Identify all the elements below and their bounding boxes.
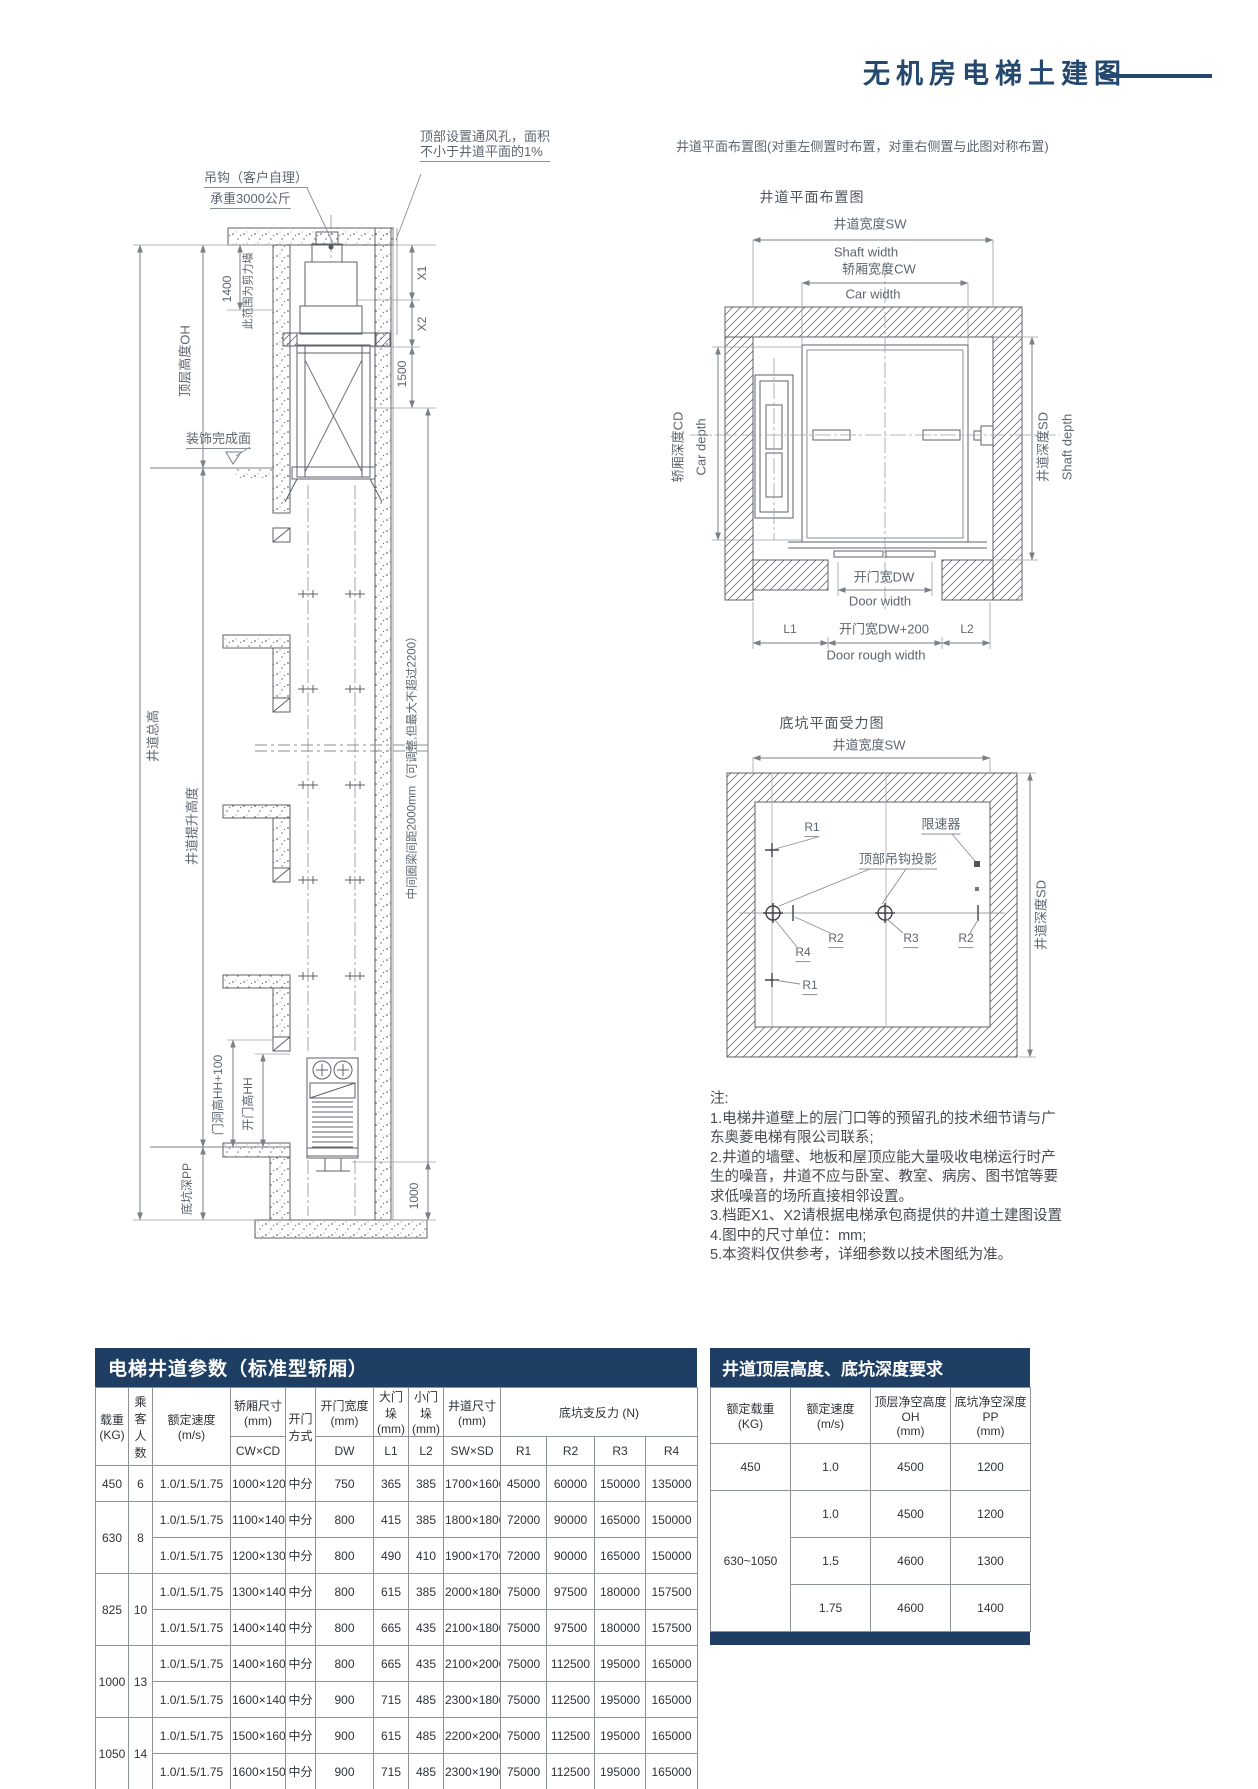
- dim-1400: 1400: [221, 276, 235, 303]
- table-row: 45061.0/1.5/1.751000×1200中分7503653851700…: [96, 1466, 698, 1502]
- table-cell: 75000: [501, 1682, 547, 1718]
- col-subheader-swsd: SW×SD: [444, 1437, 501, 1466]
- col-header-car-size: 轿厢尺寸(mm): [231, 1388, 286, 1437]
- pit-r2-right: R2: [958, 932, 973, 948]
- col-subheader-r3: R3: [595, 1437, 646, 1466]
- table-cell: 97500: [547, 1610, 595, 1646]
- table-cell: 75000: [501, 1574, 547, 1610]
- table-cell: 630: [96, 1502, 129, 1574]
- col-subheader-r1: R1: [501, 1437, 547, 1466]
- table-cell: 90000: [547, 1538, 595, 1574]
- table-cell: 1.0/1.5/1.75: [153, 1610, 231, 1646]
- table-cell: 1500×1600: [231, 1718, 286, 1754]
- shear-wall-label: 此范围为剪力墙: [243, 253, 256, 330]
- table-cell: 150000: [646, 1538, 698, 1574]
- table-cell: 112500: [547, 1754, 595, 1789]
- vent-note-line1: 顶部设置通风孔，面积: [420, 130, 550, 145]
- table-cell: 75000: [501, 1754, 547, 1789]
- table-cell: 415: [374, 1502, 409, 1538]
- table-row: 1050141.0/1.5/1.751500×1600中分90061548522…: [96, 1718, 698, 1754]
- table-cell: 1050: [96, 1718, 129, 1789]
- shaft-depth-en: Shaft depth: [1061, 414, 1076, 481]
- table-cell: 中分: [286, 1754, 316, 1789]
- table-cell: 1.0/1.5/1.75: [153, 1502, 231, 1538]
- car-width-cn: 轿厢宽度CW: [842, 263, 916, 278]
- table-cell: 13: [129, 1646, 153, 1718]
- table-cell: 800: [316, 1502, 374, 1538]
- car-depth-cn: 轿厢深度CD: [672, 412, 687, 483]
- col-header-oh: 顶层净空高度OH(mm): [871, 1388, 951, 1444]
- table-cell: 8: [129, 1502, 153, 1574]
- table-cell: 385: [409, 1574, 444, 1610]
- table-cell: 1400×1600: [231, 1646, 286, 1682]
- table-cell: 1600×1400: [231, 1682, 286, 1718]
- table-cell: 715: [374, 1682, 409, 1718]
- table-cell: 1400×1400: [231, 1610, 286, 1646]
- table-cell: 75000: [501, 1718, 547, 1754]
- table-cell: 150000: [595, 1466, 646, 1502]
- table-row: 63081.0/1.5/1.751100×1400中分8004153851800…: [96, 1502, 698, 1538]
- table-cell: 1200×1300: [231, 1538, 286, 1574]
- table-cell: 60000: [547, 1466, 595, 1502]
- door-width-cn: 开门宽DW: [854, 571, 915, 586]
- vent-note: 顶部设置通风孔，面积 不小于井道平面的1%: [420, 130, 550, 162]
- door-opening-height-label: 门洞高HH+100: [212, 1055, 226, 1135]
- table-cell: 485: [409, 1718, 444, 1754]
- table-cell: 1300: [951, 1538, 1031, 1585]
- dim-x2: X2: [416, 317, 430, 332]
- col-header-pp: 底坑净空深度PP(mm): [951, 1388, 1031, 1444]
- table-cell: 4600: [871, 1538, 951, 1585]
- table-cell: 800: [316, 1538, 374, 1574]
- col-header-pit-force: 底坑支反力 (N): [501, 1388, 698, 1437]
- col-subheader-r4: R4: [646, 1437, 698, 1466]
- dim-1000: 1000: [408, 1183, 422, 1210]
- table-cell: 665: [374, 1610, 409, 1646]
- notes-heading: 注:: [710, 1090, 1062, 1110]
- note-line: 3.档距X1、X2请根据电梯承包商提供的井道土建图设置: [710, 1207, 1062, 1227]
- table-cell: 195000: [595, 1754, 646, 1789]
- car-depth-en: Car depth: [695, 418, 710, 475]
- table-cell: 750: [316, 1466, 374, 1502]
- table-cell: 2200×2000: [444, 1718, 501, 1754]
- shaft-depth-cn: 井道深度SD: [1037, 412, 1052, 482]
- table-cell: 1400: [951, 1585, 1031, 1632]
- table-cell: 1800×1800: [444, 1502, 501, 1538]
- table-cell: 45000: [501, 1466, 547, 1502]
- table-cell: 385: [409, 1502, 444, 1538]
- car-width-en: Car width: [846, 288, 901, 303]
- table-row: 630~10501.045001200: [711, 1491, 1031, 1538]
- pit-shaft-depth: 井道深度SD: [1035, 880, 1050, 950]
- table-cell: 14: [129, 1718, 153, 1789]
- top-floor-height-label: 顶层高度OH: [179, 325, 194, 397]
- shaft-width-cn: 井道宽度SW: [834, 218, 907, 233]
- pit-title: 底坑平面受力图: [780, 715, 885, 731]
- table-cell: 195000: [595, 1646, 646, 1682]
- table-cell: 2300×1900: [444, 1754, 501, 1789]
- table-cell: 365: [374, 1466, 409, 1502]
- note-line: 4.图中的尺寸单位：mm;: [710, 1227, 1062, 1247]
- table-cell: 485: [409, 1754, 444, 1789]
- table-cell: 6: [129, 1466, 153, 1502]
- ring-beam-label: 中间圈梁间距2000mm（可调整,但最大不超过2200）: [406, 630, 419, 899]
- table-cell: 1.0: [791, 1444, 871, 1491]
- table-cell: 2000×1800: [444, 1574, 501, 1610]
- table-cell: 1200: [951, 1444, 1031, 1491]
- table-cell: 1600×1500: [231, 1754, 286, 1789]
- table-cell: 4600: [871, 1585, 951, 1632]
- col-header-shaft-size: 井道尺寸(mm): [444, 1388, 501, 1437]
- table-cell: 1.75: [791, 1585, 871, 1632]
- hook-note-line1: 吊钩（客户自理）: [204, 171, 308, 188]
- table-cell: 1700×1600: [444, 1466, 501, 1502]
- table-cell: 112500: [547, 1682, 595, 1718]
- table-cell: 72000: [501, 1538, 547, 1574]
- table-cell: 195000: [595, 1682, 646, 1718]
- table-row: 4501.045001200: [711, 1444, 1031, 1491]
- table-cell: 10: [129, 1574, 153, 1646]
- table-cell: 410: [409, 1538, 444, 1574]
- shaft-width-en: Shaft width: [834, 246, 898, 261]
- table-cell: 中分: [286, 1502, 316, 1538]
- table-row: 1000131.0/1.5/1.751400×1600中分80066543521…: [96, 1646, 698, 1682]
- table-cell: 385: [409, 1466, 444, 1502]
- pit-r4: R4: [795, 946, 810, 962]
- table-cell: 1.0/1.5/1.75: [153, 1538, 231, 1574]
- pit-plan-view: [727, 758, 1036, 1057]
- pit-r2-left: R2: [828, 932, 843, 948]
- table-cell: 715: [374, 1754, 409, 1789]
- table-row: 1.0/1.5/1.751200×1300中分8004904101900×170…: [96, 1538, 698, 1574]
- col-header-l2: 小门垛(mm): [409, 1388, 444, 1437]
- pit-depth-label: 底坑深PP: [181, 1163, 195, 1215]
- table-cell: 165000: [646, 1646, 698, 1682]
- col-subheader-dw: DW: [316, 1437, 374, 1466]
- note-line: 东奥菱电梯有限公司联系;: [710, 1129, 1062, 1149]
- table-cell: 180000: [595, 1574, 646, 1610]
- notes-block: 注: 1.电梯井道壁上的层门口等的预留孔的技术细节请与广 东奥菱电梯有限公司联系…: [710, 1090, 1062, 1266]
- table-cell: 450: [711, 1444, 791, 1491]
- table-cell: 1.0/1.5/1.75: [153, 1574, 231, 1610]
- dim-1500: 1500: [396, 361, 410, 388]
- table-cell: 中分: [286, 1574, 316, 1610]
- col-header-rated-speed: 额定速度(m/s): [791, 1388, 871, 1444]
- note-line: 求低噪音的场所直接相邻设置。: [710, 1188, 1062, 1208]
- table-cell: 1000×1200: [231, 1466, 286, 1502]
- table-cell: 165000: [595, 1538, 646, 1574]
- table-cell: 2100×1800: [444, 1610, 501, 1646]
- table-cell: 90000: [547, 1502, 595, 1538]
- col-header-rated-load: 额定载重(KG): [711, 1388, 791, 1444]
- table-cell: 中分: [286, 1718, 316, 1754]
- col-subheader-r2: R2: [547, 1437, 595, 1466]
- height-table-footer-bar: [710, 1632, 1030, 1645]
- table-cell: 中分: [286, 1682, 316, 1718]
- table-cell: 165000: [646, 1754, 698, 1789]
- table-cell: 490: [374, 1538, 409, 1574]
- note-line: 5.本资料仅供参考，详细参数以技术图纸为准。: [710, 1246, 1062, 1266]
- table-cell: 75000: [501, 1610, 547, 1646]
- dim-x1: X1: [416, 266, 430, 281]
- dim-l1: L1: [783, 623, 796, 637]
- note-line: 1.电梯井道壁上的层门口等的预留孔的技术细节请与广: [710, 1110, 1062, 1130]
- height-table-title: 井道顶层高度、底坑深度要求: [710, 1348, 1030, 1387]
- table-cell: 900: [316, 1682, 374, 1718]
- note-line: 生的噪音，井道不应与卧室、教室、病房、图书馆等要: [710, 1168, 1062, 1188]
- table-cell: 1.5: [791, 1538, 871, 1585]
- table-row: 1.0/1.5/1.751600×1400中分9007154852300×180…: [96, 1682, 698, 1718]
- table-cell: 450: [96, 1466, 129, 1502]
- table-cell: 157500: [646, 1574, 698, 1610]
- height-table-card: 井道顶层高度、底坑深度要求 额定载重(KG) 额定速度(m/s) 顶层净空高度O…: [710, 1348, 1030, 1645]
- col-subheader-cwcd: CW×CD: [231, 1437, 286, 1466]
- col-header-open-type: 开门方式: [286, 1388, 316, 1466]
- pit-r3: R3: [903, 932, 918, 948]
- drawing-sheet: 无机房电梯土建图 顶部设置通风孔，面积 不小于井道平面的1% 吊钩（客户自理） …: [0, 0, 1258, 1789]
- door-rough-width-en: Door rough width: [827, 649, 926, 664]
- table-cell: 4500: [871, 1491, 951, 1538]
- col-header-passengers: 乘客人数: [129, 1388, 153, 1466]
- table-cell: 1.0/1.5/1.75: [153, 1754, 231, 1789]
- table-cell: 97500: [547, 1574, 595, 1610]
- table-cell: 1000: [96, 1646, 129, 1718]
- dim-l2: L2: [960, 623, 973, 637]
- param-table-title: 电梯井道参数（标准型轿厢）: [95, 1348, 697, 1387]
- table-cell: 180000: [595, 1610, 646, 1646]
- table-cell: 1900×1700: [444, 1538, 501, 1574]
- table-cell: 800: [316, 1646, 374, 1682]
- param-table: 载重(KG) 乘客人数 额定速度(m/s) 轿厢尺寸(mm) 开门方式 开门宽度…: [95, 1387, 698, 1789]
- door-height-label: 开门高HH: [242, 1077, 256, 1130]
- table-cell: 665: [374, 1646, 409, 1682]
- table-cell: 1200: [951, 1491, 1031, 1538]
- pit-r1-lower: R1: [802, 979, 817, 995]
- table-cell: 485: [409, 1682, 444, 1718]
- table-cell: 1.0/1.5/1.75: [153, 1682, 231, 1718]
- table-cell: 135000: [646, 1466, 698, 1502]
- dim-dw200: 开门宽DW+200: [839, 623, 929, 638]
- height-table: 额定载重(KG) 额定速度(m/s) 顶层净空高度OH(mm) 底坑净空深度PP…: [710, 1387, 1031, 1632]
- plan-title: 井道平面布置图: [760, 189, 865, 205]
- col-subheader-l1: L1: [374, 1437, 409, 1466]
- col-header-speed: 额定速度(m/s): [153, 1388, 231, 1466]
- table-cell: 2300×1800: [444, 1682, 501, 1718]
- table-cell: 中分: [286, 1646, 316, 1682]
- table-cell: 630~1050: [711, 1491, 791, 1632]
- page-title: 无机房电梯土建图: [863, 52, 1127, 91]
- vent-note-line2: 不小于井道平面的1%: [420, 145, 550, 162]
- table-cell: 195000: [595, 1718, 646, 1754]
- table-cell: 157500: [646, 1610, 698, 1646]
- table-cell: 75000: [501, 1646, 547, 1682]
- door-width-en: Door width: [849, 595, 911, 610]
- col-subheader-l2: L2: [409, 1437, 444, 1466]
- note-line: 2.井道的墙壁、地板和屋顶应能大量吸收电梯运行时产: [710, 1149, 1062, 1169]
- table-cell: 435: [409, 1646, 444, 1682]
- table-cell: 150000: [646, 1502, 698, 1538]
- shaft-total-height-label: 井道总高: [147, 710, 162, 762]
- pit-shaft-width: 井道宽度SW: [833, 739, 906, 754]
- col-header-load: 载重(KG): [96, 1388, 129, 1466]
- table-cell: 1100×1400: [231, 1502, 286, 1538]
- table-cell: 165000: [646, 1718, 698, 1754]
- table-cell: 1300×1400: [231, 1574, 286, 1610]
- table-cell: 615: [374, 1574, 409, 1610]
- col-header-door-width: 开门宽度(mm): [316, 1388, 374, 1437]
- plan-note: 井道平面布置图(对重左侧置时布置，对重右侧置与此图对称布置): [676, 140, 1049, 155]
- col-header-l1: 大门垛(mm): [374, 1388, 409, 1437]
- table-cell: 1.0/1.5/1.75: [153, 1466, 231, 1502]
- table-cell: 2100×2000: [444, 1646, 501, 1682]
- table-cell: 165000: [646, 1682, 698, 1718]
- table-cell: 435: [409, 1610, 444, 1646]
- table-cell: 112500: [547, 1718, 595, 1754]
- table-row: 825101.0/1.5/1.751300×1400中分800615385200…: [96, 1574, 698, 1610]
- table-cell: 900: [316, 1754, 374, 1789]
- table-cell: 800: [316, 1574, 374, 1610]
- pit-r1-upper: R1: [804, 821, 819, 837]
- table-cell: 1.0: [791, 1491, 871, 1538]
- param-table-card: 电梯井道参数（标准型轿厢） 载重(KG) 乘客人数 额定速度(m/s) 轿厢尺寸…: [95, 1348, 697, 1789]
- table-cell: 112500: [547, 1646, 595, 1682]
- table-cell: 1.0/1.5/1.75: [153, 1646, 231, 1682]
- table-cell: 4500: [871, 1444, 951, 1491]
- table-cell: 825: [96, 1574, 129, 1646]
- governor-label: 限速器: [921, 818, 960, 835]
- hook-note-line2: 承重3000公斤: [210, 192, 291, 209]
- table-cell: 1.0/1.5/1.75: [153, 1718, 231, 1754]
- travel-height-label: 井道提升高度: [186, 787, 201, 865]
- table-cell: 615: [374, 1718, 409, 1754]
- hook-projection-label: 顶部吊钩投影: [859, 853, 937, 870]
- title-rule: [1100, 74, 1212, 78]
- table-row: 1.0/1.5/1.751400×1400中分8006654352100×180…: [96, 1610, 698, 1646]
- table-cell: 中分: [286, 1538, 316, 1574]
- table-cell: 800: [316, 1610, 374, 1646]
- table-row: 1.0/1.5/1.751600×1500中分9007154852300×190…: [96, 1754, 698, 1789]
- table-cell: 72000: [501, 1502, 547, 1538]
- table-cell: 中分: [286, 1610, 316, 1646]
- decor-surface-label: 装饰完成面: [186, 432, 251, 449]
- table-cell: 900: [316, 1718, 374, 1754]
- table-cell: 165000: [595, 1502, 646, 1538]
- table-cell: 中分: [286, 1466, 316, 1502]
